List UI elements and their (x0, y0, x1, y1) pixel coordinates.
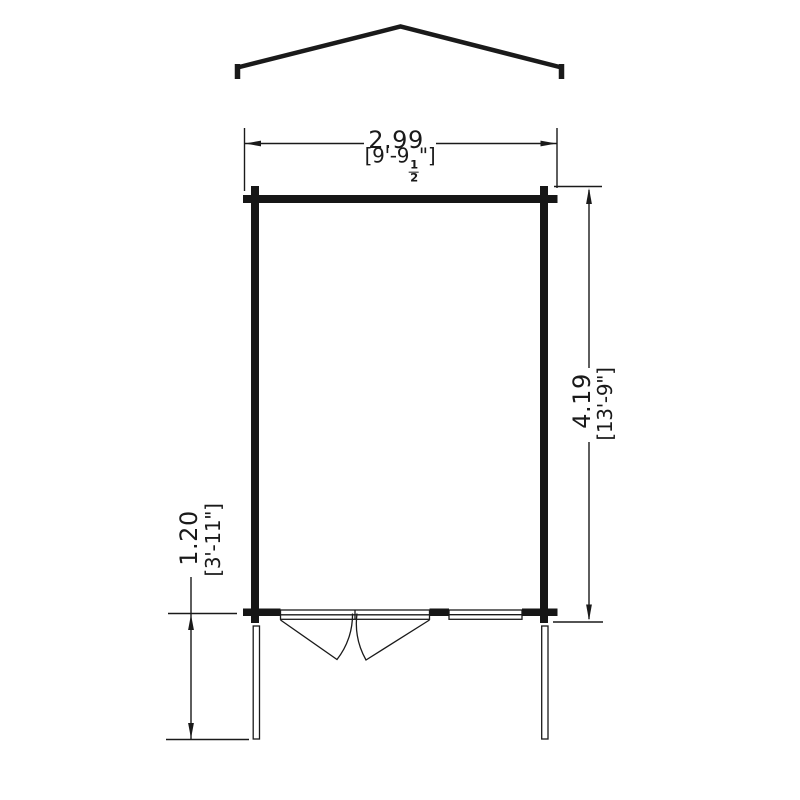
door-leaf-left (281, 614, 353, 660)
arrowhead-right (541, 141, 557, 147)
veranda-dimension (166, 577, 249, 740)
inch-fraction: 12 (409, 160, 419, 185)
wall-bottom-left-segment (243, 609, 281, 617)
veranda-dimension-imperial-label: [3'-11"] (203, 503, 223, 576)
imperial-suffix-text: "] (419, 144, 435, 168)
cabin-walls (243, 186, 558, 623)
imperial-prefix-text: [9'-9 (365, 144, 409, 168)
floor-plan-diagram: 2.99 [9'-912"] 4.19 [13'-9"] 1.20 [3'-11… (0, 0, 800, 800)
arrowhead-down (586, 605, 592, 621)
wall-top (243, 195, 558, 203)
wall-left (251, 186, 259, 623)
arrowhead-down (188, 723, 194, 739)
depth-dimension-imperial-label: [13'-9"] (595, 367, 615, 440)
fraction-denominator: 2 (410, 173, 418, 185)
door-leaf-right (356, 614, 429, 661)
wall-bottom-mid-segment (430, 609, 450, 617)
arrowhead-up (586, 188, 592, 204)
arrowhead-left (245, 141, 261, 147)
roof-ridge-lines (238, 27, 562, 68)
width-dimension-imperial-label: [9'-912"] (365, 146, 436, 185)
wall-bottom-right-segment (522, 609, 558, 617)
veranda-post-right (542, 626, 548, 739)
double-door (281, 610, 430, 660)
arrowhead-up (188, 615, 194, 631)
veranda-posts (253, 626, 548, 739)
window (449, 610, 522, 619)
wall-right (540, 186, 548, 623)
depth-dimension-metric-label: 4.19 (570, 373, 594, 428)
plan-drawing (0, 0, 800, 800)
veranda-post-left (253, 626, 259, 739)
roof-gable-outline (238, 27, 562, 80)
veranda-dimension-metric-label: 1.20 (177, 510, 201, 565)
